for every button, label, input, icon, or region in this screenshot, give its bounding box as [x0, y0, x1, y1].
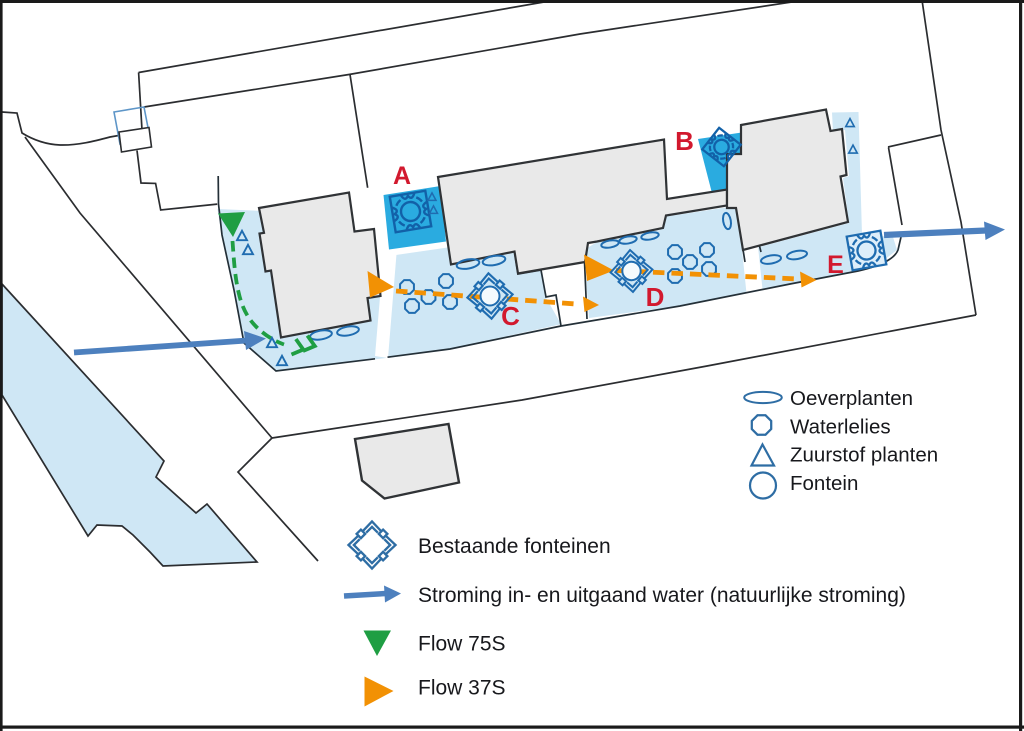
svg-text:Fontein: Fontein [790, 472, 858, 495]
svg-text:A: A [393, 162, 411, 190]
svg-text:Flow 75S: Flow 75S [418, 633, 506, 656]
svg-text:E: E [827, 251, 844, 279]
svg-text:Zuurstof planten: Zuurstof planten [790, 444, 938, 467]
svg-text:Flow 37S: Flow 37S [418, 677, 506, 700]
svg-text:Oeverplanten: Oeverplanten [790, 387, 913, 410]
svg-text:D: D [646, 282, 665, 312]
svg-text:B: B [675, 126, 694, 156]
svg-text:Waterlelies: Waterlelies [790, 416, 891, 439]
svg-text:Stroming in- en uitgaand water: Stroming in- en uitgaand water (natuurli… [418, 584, 906, 607]
svg-text:C: C [501, 301, 520, 331]
svg-text:Bestaande fonteinen: Bestaande fonteinen [418, 535, 611, 558]
